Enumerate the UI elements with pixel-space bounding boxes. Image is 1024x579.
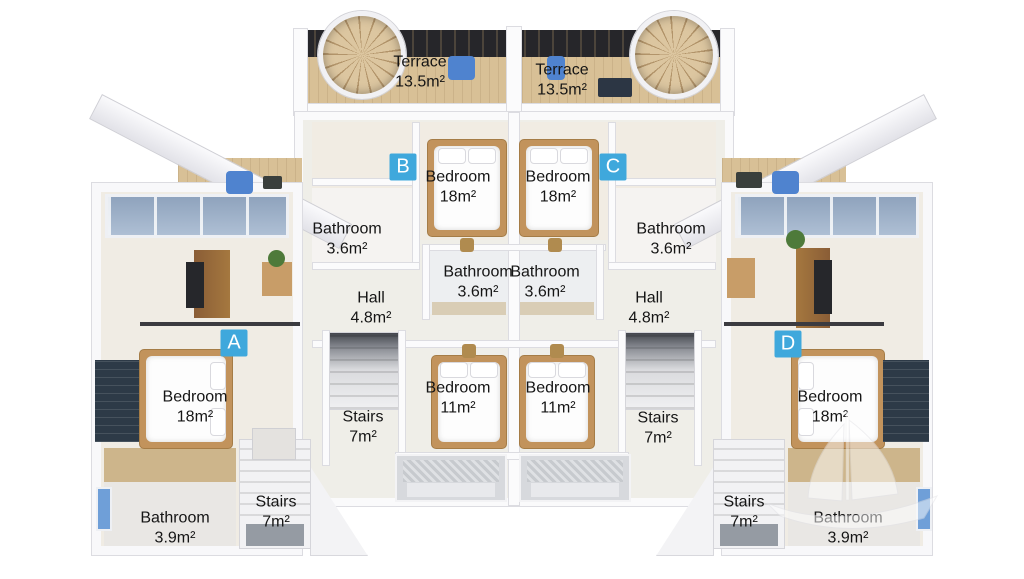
wall-divider-d-dark bbox=[724, 322, 884, 326]
room-label-bathroom-c: Bathroom 3.6m² bbox=[636, 219, 705, 258]
room-label-bedroom-d: Bedroom 18m² bbox=[798, 387, 863, 426]
shelf-d bbox=[727, 258, 755, 298]
central-rug-right bbox=[520, 302, 594, 315]
room-label-bedroom-11-left: Bedroom 11m² bbox=[426, 378, 491, 417]
room-label-bedroom-b: Bedroom 18m² bbox=[426, 167, 491, 206]
room-label-hall-right: Hall 4.8m² bbox=[629, 288, 670, 327]
media-unit-a bbox=[95, 360, 141, 442]
wall-hall-left-top bbox=[312, 262, 420, 270]
room-label-stairs-lower-right: Stairs 7m² bbox=[724, 492, 765, 531]
window-d-blue bbox=[916, 487, 932, 531]
room-label-bedroom-a: Bedroom 18m² bbox=[163, 387, 228, 426]
room-label-stairs-mid-right: Stairs 7m² bbox=[638, 408, 679, 447]
bed-knob-b bbox=[460, 238, 474, 252]
wall-stairs-right-a bbox=[618, 330, 626, 466]
skylight-left bbox=[105, 194, 289, 238]
terrace-right-wall bbox=[720, 28, 735, 116]
plant-a-icon bbox=[268, 250, 285, 267]
wood-floor-strip-d bbox=[788, 448, 920, 482]
terrace-table-dark bbox=[598, 78, 632, 97]
unit-badge-d: D bbox=[775, 331, 802, 358]
deck-right-lounge-blue bbox=[772, 171, 799, 194]
wall-central-bath-top bbox=[422, 244, 606, 251]
wood-floor-strip-a bbox=[104, 448, 236, 482]
wardrobe-a bbox=[252, 428, 296, 460]
central-rug-left bbox=[432, 302, 506, 315]
room-label-terrace-left: Terrace 13.5m² bbox=[393, 52, 446, 91]
wall-b-vert bbox=[412, 122, 420, 270]
bed-knob-c bbox=[548, 238, 562, 252]
wall-stairs-right-b bbox=[694, 330, 702, 466]
room-label-terrace-right: Terrace 13.5m² bbox=[535, 60, 588, 99]
wall-divider-a-dark bbox=[140, 322, 300, 326]
deck-right-table bbox=[736, 172, 762, 188]
balcony-right bbox=[521, 456, 629, 500]
wall-stairs-left-b bbox=[398, 330, 406, 466]
room-label-bathroom-d: Bathroom 3.9m² bbox=[813, 508, 882, 547]
room-label-bathroom-b: Bathroom 3.6m² bbox=[312, 219, 381, 258]
terrace-sofa-blue bbox=[448, 56, 475, 80]
wall-central-bath-right bbox=[596, 244, 604, 320]
window-a-blue bbox=[96, 487, 112, 531]
terrace-divider-wall bbox=[506, 26, 522, 116]
wall-c-vert bbox=[608, 122, 616, 270]
bed-knob-11-left bbox=[462, 344, 476, 358]
room-label-stairs-lower-left: Stairs 7m² bbox=[256, 492, 297, 531]
room-label-bedroom-11-right: Bedroom 11m² bbox=[526, 378, 591, 417]
room-label-bathroom-center-left: Bathroom 3.6m² bbox=[443, 262, 512, 301]
terrace-left-wall bbox=[293, 28, 308, 116]
unit-badge-a: A bbox=[221, 330, 248, 357]
deck-left-table bbox=[263, 176, 282, 189]
unit-badge-b: B bbox=[390, 154, 417, 181]
room-label-bathroom-center-right: Bathroom 3.6m² bbox=[510, 262, 579, 301]
spiral-staircase-right bbox=[630, 11, 718, 99]
wall-stairs-left-a bbox=[322, 330, 330, 466]
floor-plan-canvas: A B C D Terrace 13.5m² Terrace 13.5m² Be… bbox=[0, 0, 1024, 579]
plant-d-icon bbox=[786, 230, 805, 249]
wall-hall-right-top bbox=[608, 262, 716, 270]
shelf-a bbox=[262, 262, 292, 296]
wall-center-divider bbox=[508, 112, 520, 506]
stairs-mid-left-steps bbox=[330, 333, 398, 409]
deck-left-lounge-blue bbox=[226, 171, 253, 194]
room-label-bathroom-a: Bathroom 3.9m² bbox=[140, 508, 209, 547]
room-label-bedroom-c: Bedroom 18m² bbox=[526, 167, 591, 206]
balcony-left bbox=[397, 456, 505, 500]
stairs-mid-right-steps bbox=[626, 333, 694, 409]
unit-badge-c: C bbox=[600, 154, 627, 181]
media-unit-d bbox=[883, 360, 929, 442]
room-label-hall-left: Hall 4.8m² bbox=[351, 288, 392, 327]
wall-c-bath bbox=[612, 178, 716, 186]
room-label-stairs-mid-left: Stairs 7m² bbox=[343, 407, 384, 446]
bed-knob-11-right bbox=[550, 344, 564, 358]
wall-central-bath-left bbox=[422, 244, 430, 320]
tv-screen-d bbox=[814, 260, 832, 314]
skylight-right bbox=[735, 194, 919, 238]
tv-screen-a bbox=[186, 262, 204, 308]
